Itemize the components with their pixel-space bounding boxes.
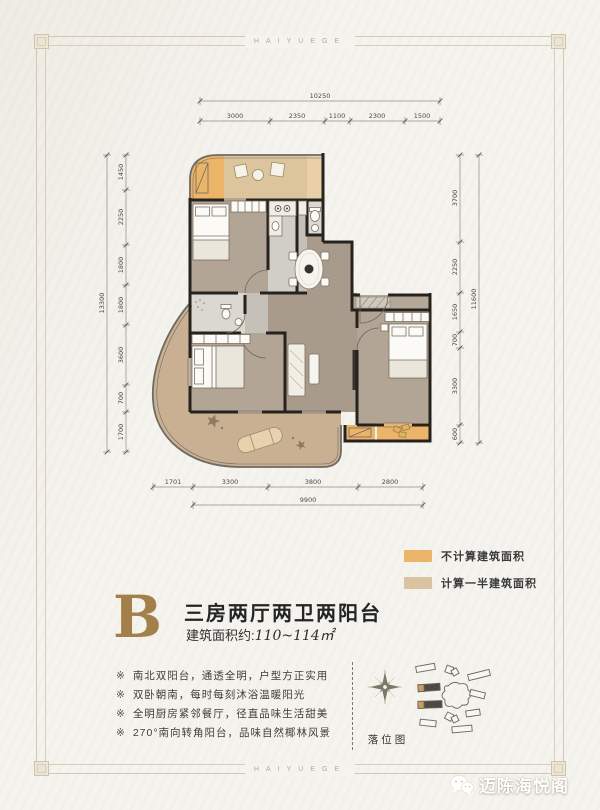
dim-label: 700 (117, 392, 125, 404)
feature-item: ※南北双阳台，通透全明，户型方正实用 (116, 667, 331, 686)
dim-label: 9900 (300, 496, 317, 504)
frame-corner-ornament (34, 761, 49, 776)
dim-label: 1701 (165, 478, 182, 486)
compass-icon (366, 668, 404, 706)
feature-text: 双卧朝南，每时每刻沐浴温暖阳光 (133, 689, 306, 701)
feature-marker: ※ (116, 727, 126, 739)
feature-marker: ※ (116, 689, 126, 701)
site-map-illustration (404, 660, 509, 745)
legend-swatch-no-count (404, 550, 432, 562)
dim-label: 1800 (117, 297, 125, 314)
dim-label: 2250 (451, 259, 459, 276)
feature-text: 南北双阳台，通透全明，户型方正实用 (133, 670, 329, 682)
dim-label: 2800 (382, 478, 399, 486)
features-list: ※南北双阳台，通透全明，户型方正实用 ※双卧朝南，每时每刻沐浴温暖阳光 ※全明厨… (116, 667, 331, 743)
legend-swatch-half-count (404, 577, 432, 589)
frame-corner-ornament (34, 34, 49, 49)
dim-label: 11600 (470, 289, 478, 310)
dim-label: 3600 (117, 347, 125, 364)
dim-label: 3800 (305, 478, 322, 486)
legend-label: 计算一半建筑面积 (441, 575, 537, 591)
unit-letter: B (113, 588, 162, 646)
dim-label: 1500 (414, 112, 431, 120)
dining-table (289, 249, 329, 289)
unit-area-prefix: 建筑面积约: (186, 628, 255, 643)
dim-label: 3000 (227, 112, 244, 120)
section-divider (352, 662, 353, 750)
dim-label: 1450 (117, 164, 125, 181)
dim-label: 3300 (222, 478, 239, 486)
legend-label: 不计算建筑面积 (441, 548, 525, 564)
feature-text: 270°南向转角阳台，品味自然椰林风景 (133, 727, 331, 739)
legend-item: 不计算建筑面积 (404, 548, 537, 564)
frame-corner-ornament (551, 34, 566, 49)
legend: 不计算建筑面积 计算一半建筑面积 (404, 548, 537, 602)
unit-area-value: 110~114㎡ (255, 628, 334, 644)
feature-marker: ※ (116, 708, 126, 720)
site-building-cluster (444, 712, 459, 723)
feature-item: ※全明厨房紧邻餐厅，径直品味生活甜美 (116, 705, 331, 724)
dim-label: 3700 (451, 190, 459, 207)
feature-item: ※270°南向转角阳台，品味自然椰林风景 (116, 724, 331, 743)
unit-area: 建筑面积约:110~114㎡ (186, 625, 334, 645)
unit-title: 三房两厅两卫两阳台 (184, 597, 382, 626)
dim-label: 1100 (329, 112, 346, 120)
legend-item: 计算一半建筑面积 (404, 575, 537, 591)
no-count-platform-1 (345, 425, 375, 441)
dim-label: 1800 (117, 257, 125, 274)
feature-item: ※双卧朝南，每时每刻沐浴温暖阳光 (116, 686, 331, 705)
dim-label: 2250 (117, 209, 125, 226)
site-building-highlighted (418, 683, 440, 692)
feature-text: 全明厨房紧邻餐厅，径直品味生活甜美 (133, 708, 329, 720)
room-bath-left (190, 293, 245, 333)
dim-label: 10250 (310, 92, 331, 100)
dim-label: 1650 (451, 304, 459, 321)
dim-label: 2300 (369, 112, 386, 120)
flyer-page: HAIYUEGE HAIYUEGE (0, 0, 600, 810)
wechat-icon (450, 774, 474, 796)
dim-label: 700 (451, 334, 459, 346)
dim-label: 600 (451, 428, 459, 440)
watermark: 迈陈海悦阁 (450, 772, 569, 797)
floor-plan: 10250 3000 2350 1100 2300 1500 13300 145… (88, 88, 498, 528)
dim-label: 1700 (117, 424, 125, 441)
feature-marker: ※ (116, 670, 126, 682)
brand-letters-top: HAIYUEGE (245, 35, 355, 48)
brand-letters-bottom: HAIYUEGE (245, 763, 355, 776)
dim-label: 13300 (98, 293, 106, 314)
dim-label: 2350 (289, 112, 306, 120)
entrance-mat (356, 297, 390, 308)
site-building-highlighted (418, 701, 442, 709)
watermark-text: 迈陈海悦阁 (479, 772, 569, 797)
dim-label: 3300 (451, 378, 459, 395)
site-building-cluster (445, 665, 459, 676)
